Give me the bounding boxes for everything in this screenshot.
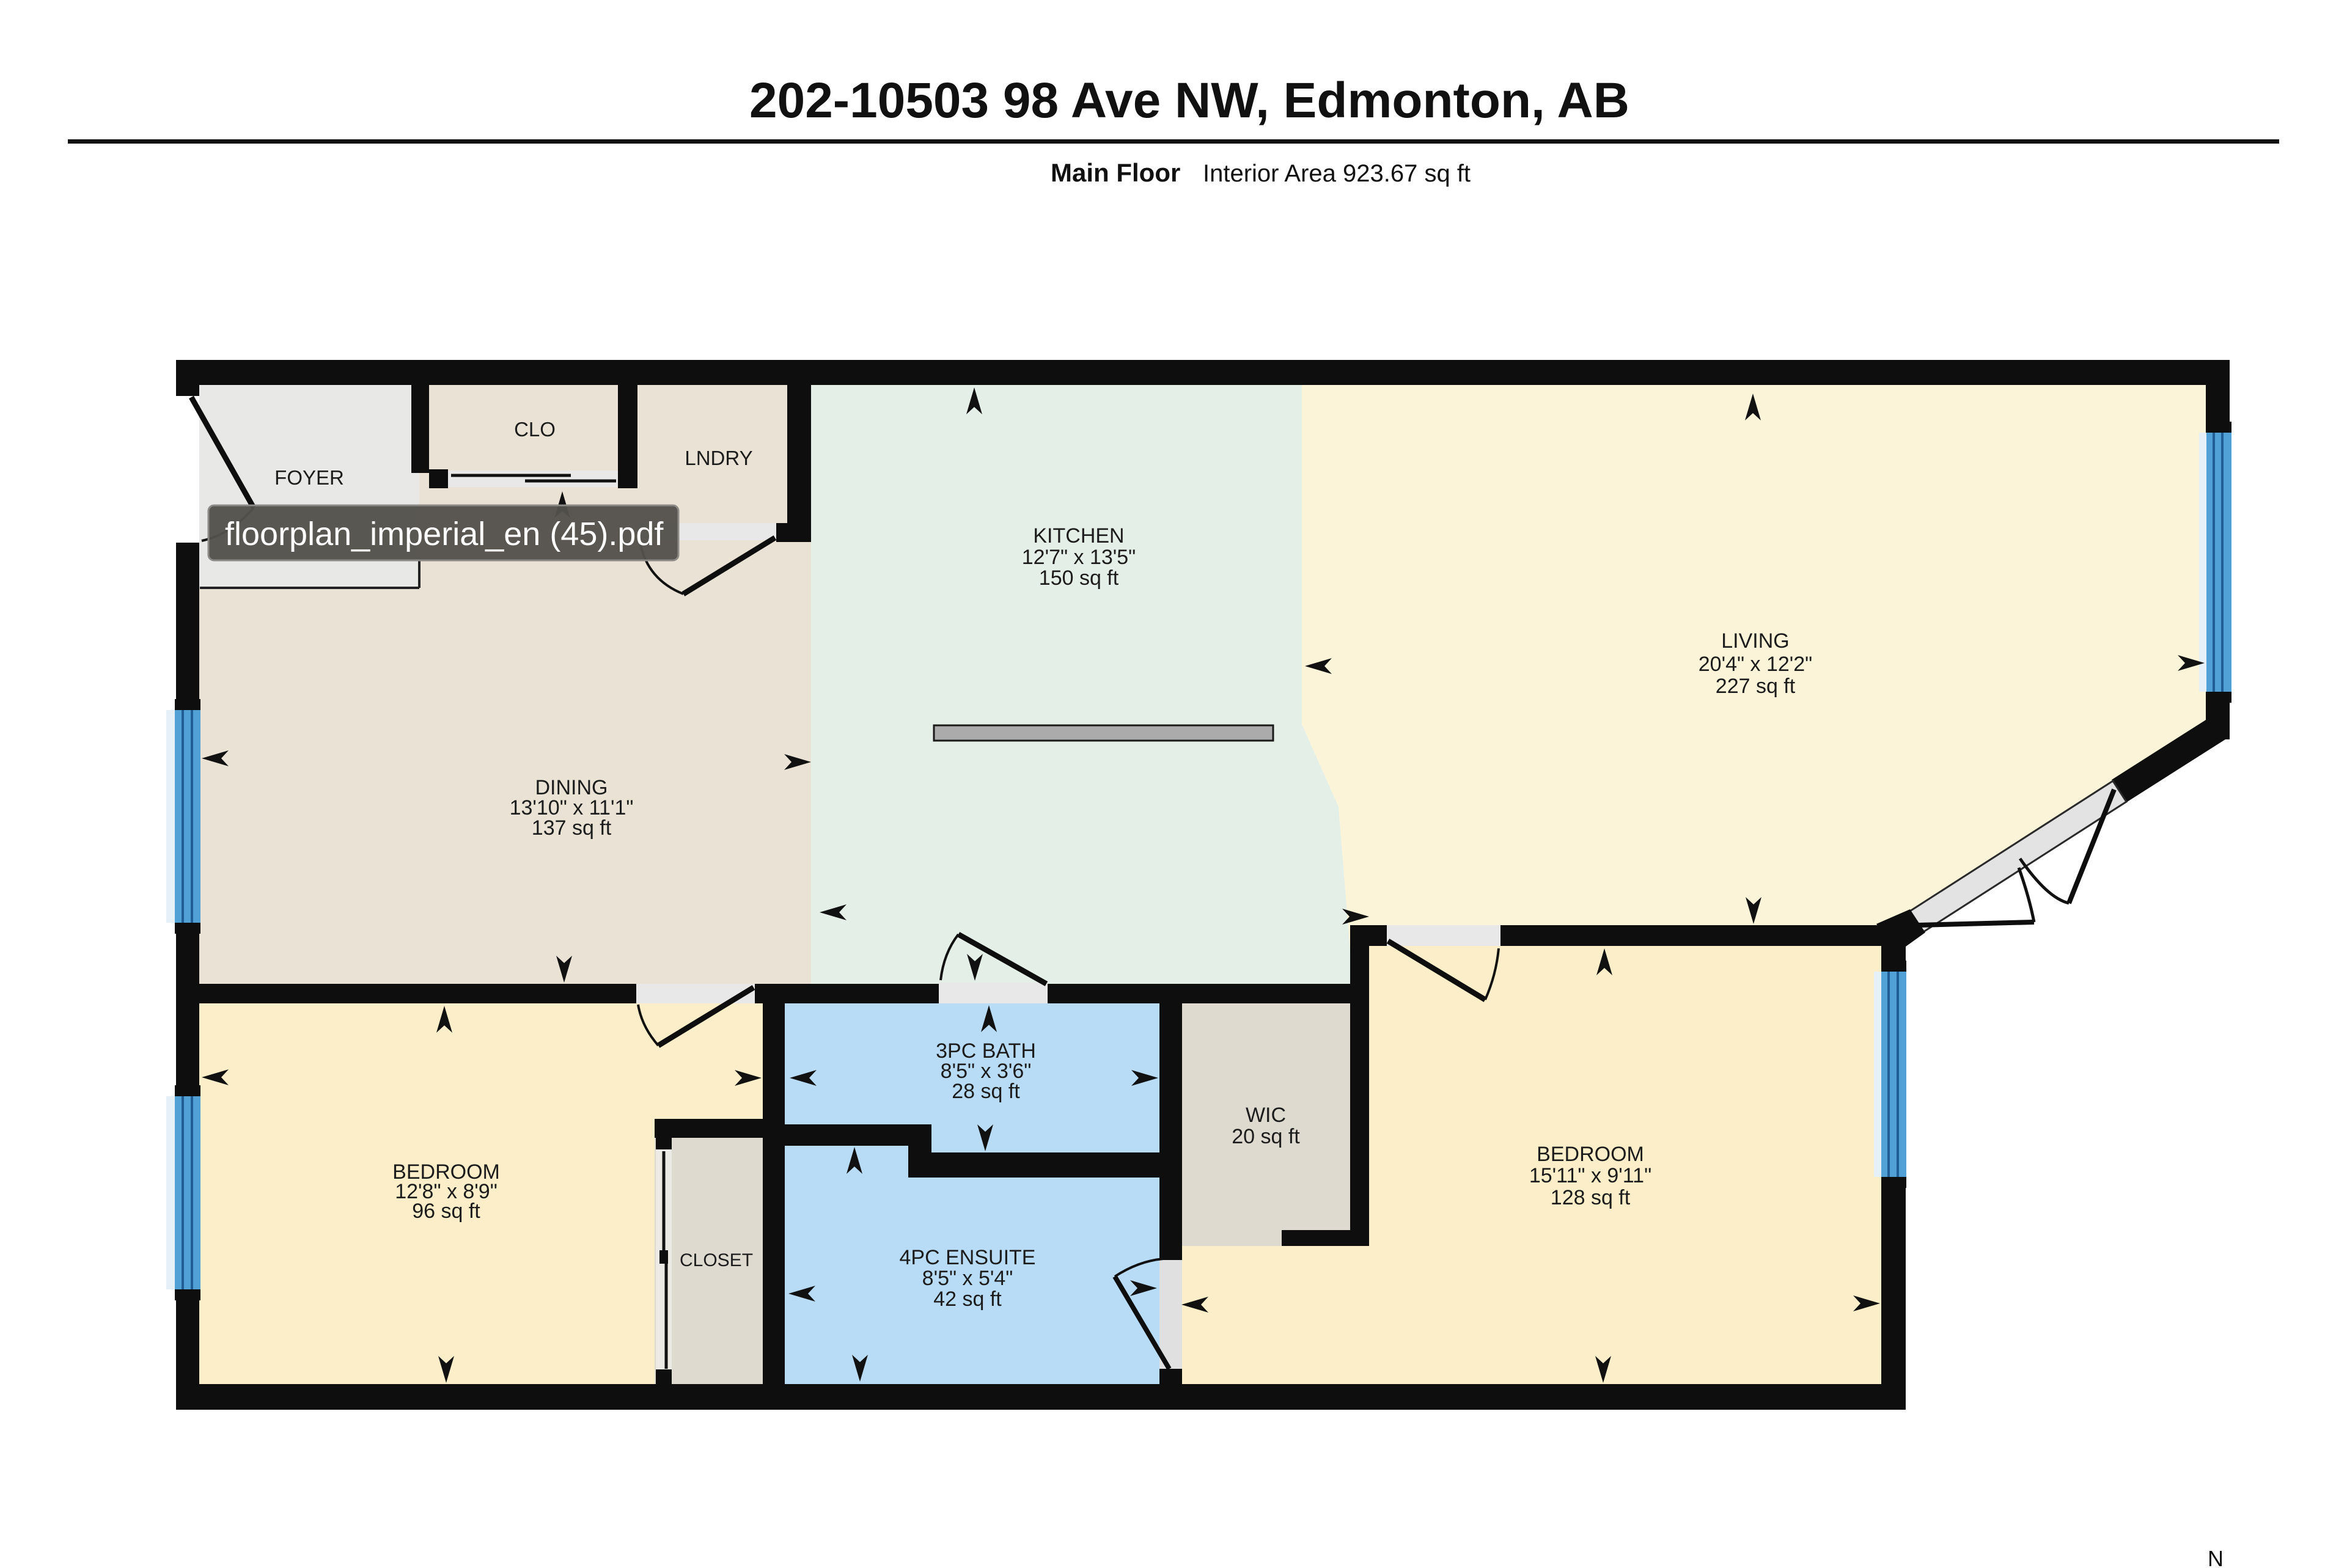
svg-text:Interior Area 923.67 sq ft: Interior Area 923.67 sq ft: [1203, 160, 1471, 187]
svg-text:CLOSET: CLOSET: [680, 1250, 753, 1270]
svg-text:LNDRY: LNDRY: [685, 447, 752, 469]
svg-text:202-10503 98 Ave NW, Edmonton,: 202-10503 98 Ave NW, Edmonton, AB: [749, 73, 1629, 128]
svg-text:N: N: [2208, 1546, 2224, 1568]
svg-text:FOYER: FOYER: [274, 466, 344, 489]
svg-text:Main Floor: Main Floor: [1051, 158, 1180, 187]
svg-text:CLO: CLO: [514, 418, 556, 441]
svg-text:floorplan_imperial_en (45).pdf: floorplan_imperial_en (45).pdf: [225, 516, 664, 552]
